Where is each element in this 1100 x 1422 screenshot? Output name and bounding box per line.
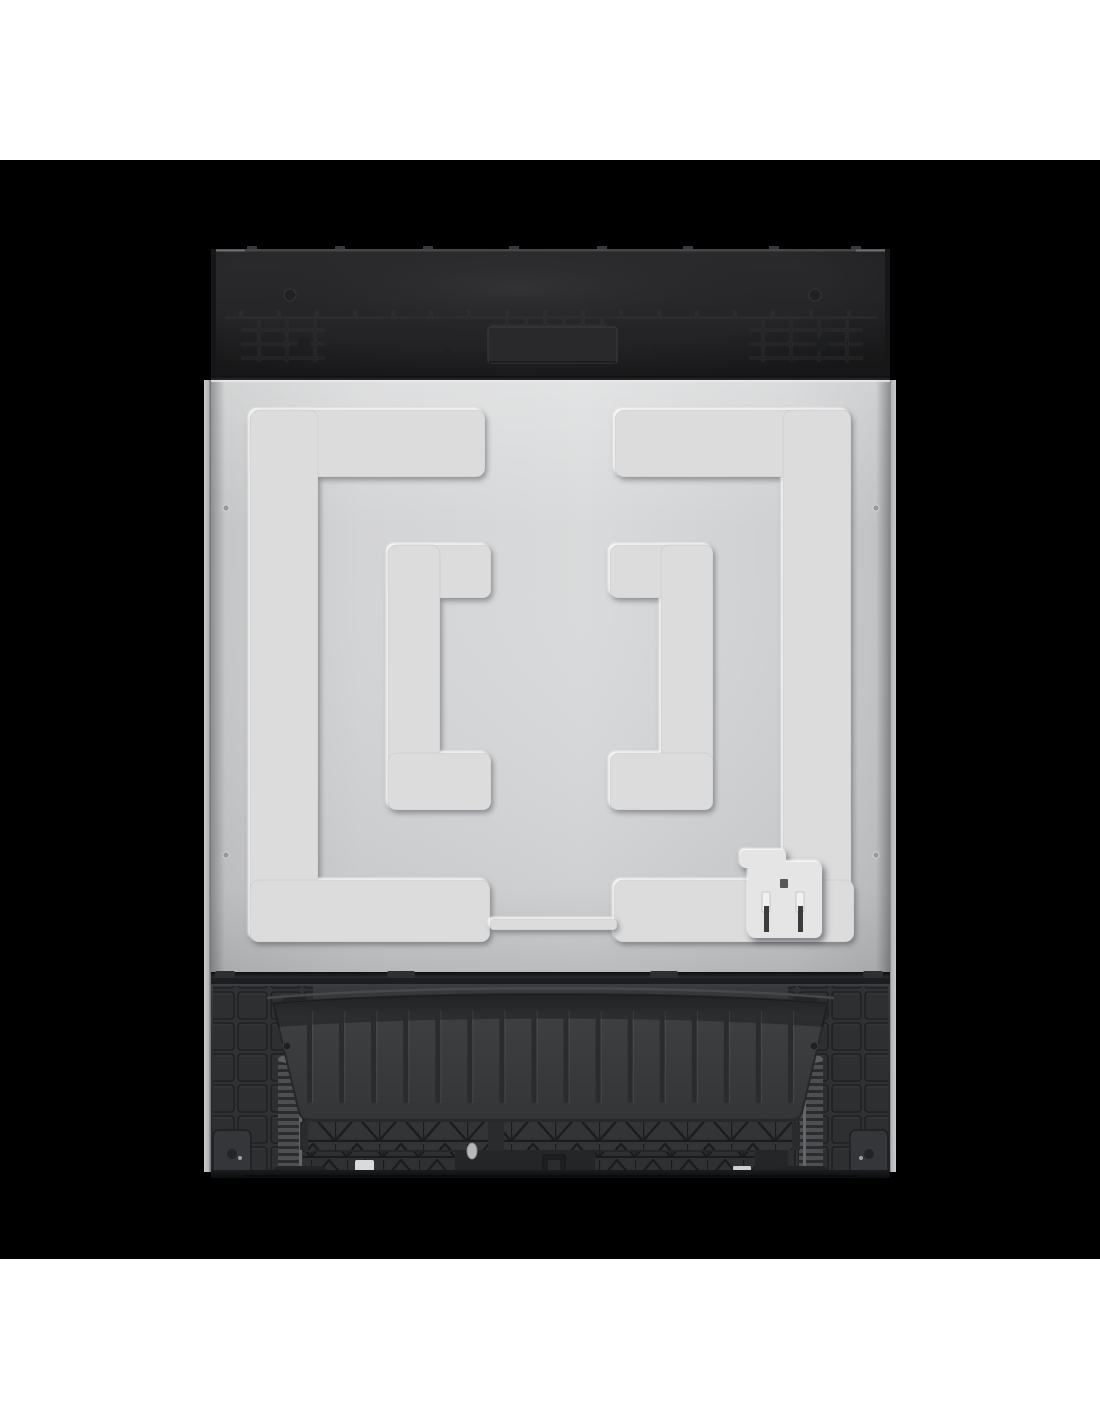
appliance-rear-photo <box>203 246 897 1178</box>
panel-hole-left <box>284 289 296 301</box>
kick-panel-rib <box>628 1011 633 1103</box>
kick-panel-rib <box>788 1011 793 1103</box>
vent-grid-left <box>241 320 325 362</box>
kick-panel-rib <box>371 1011 376 1103</box>
tray-screw-left <box>283 1042 291 1050</box>
appliance-drawing <box>203 246 897 1178</box>
kick-panel-rib-highlight <box>697 1011 698 1103</box>
kick-panel-rib <box>724 1011 729 1103</box>
base-assembly <box>211 978 890 1178</box>
outlet-slot-right <box>798 906 803 932</box>
kick-panel-rib <box>403 1011 408 1103</box>
kick-panel-rib <box>467 1011 472 1103</box>
power-cord-outlet <box>740 850 822 938</box>
side-wall-left <box>204 380 211 1172</box>
kick-panel-rib <box>339 1011 344 1103</box>
kick-panel-rib-highlight <box>312 1011 313 1103</box>
drain-hole <box>467 1143 477 1159</box>
kick-panel-rib-highlight <box>408 1011 409 1103</box>
vent-grid-right <box>749 320 863 362</box>
kick-panel-rib <box>564 1011 569 1103</box>
panel-base-seam <box>211 972 890 978</box>
embossed-connector-bar <box>490 919 617 930</box>
kick-panel-rib <box>532 1011 537 1103</box>
vent-cell-row <box>225 310 877 319</box>
kick-panel-rib-highlight <box>472 1011 473 1103</box>
panel-plug-left <box>298 339 311 352</box>
kick-panel-rib-highlight <box>376 1011 377 1103</box>
rating-label-plate <box>488 327 617 363</box>
tray-screw-right <box>810 1042 818 1050</box>
back-panel <box>211 380 890 978</box>
panel-hole-right <box>809 289 821 301</box>
top-panel-rim <box>211 249 890 252</box>
kick-panel-rib-highlight <box>729 1011 730 1103</box>
kick-panel-rib <box>692 1011 697 1103</box>
kick-panel-tray <box>267 988 834 1120</box>
kick-panel-rib-highlight <box>761 1011 762 1103</box>
kick-panel-rib-highlight <box>504 1011 505 1103</box>
kick-panel-rib <box>660 1011 665 1103</box>
kick-panel-rib <box>596 1011 601 1103</box>
kick-panel-rib-highlight <box>537 1011 538 1103</box>
top-panel-seam <box>211 376 890 380</box>
kick-panel-rib-highlight <box>793 1011 794 1103</box>
outlet-slot-left <box>764 906 769 932</box>
kick-panel-rib-highlight <box>633 1011 634 1103</box>
vent-cell-row-small <box>490 319 606 327</box>
kick-panel-rib-highlight <box>665 1011 666 1103</box>
product-screenshot <box>0 0 1100 1422</box>
kick-panel-rib-highlight <box>569 1011 570 1103</box>
kick-panel-rib-highlight <box>344 1011 345 1103</box>
truss-web-upper <box>300 1122 800 1150</box>
kick-panel-rib <box>435 1011 440 1103</box>
kick-panel-rib <box>756 1011 761 1103</box>
kick-panel-rib-highlight <box>440 1011 441 1103</box>
kick-panel-rib <box>307 1011 312 1103</box>
panel-plug-right <box>816 339 829 352</box>
kick-panel-rib-highlight <box>601 1011 602 1103</box>
top-panel <box>211 246 890 380</box>
kick-panel-rib <box>499 1011 504 1103</box>
side-wall-right <box>889 380 896 1172</box>
